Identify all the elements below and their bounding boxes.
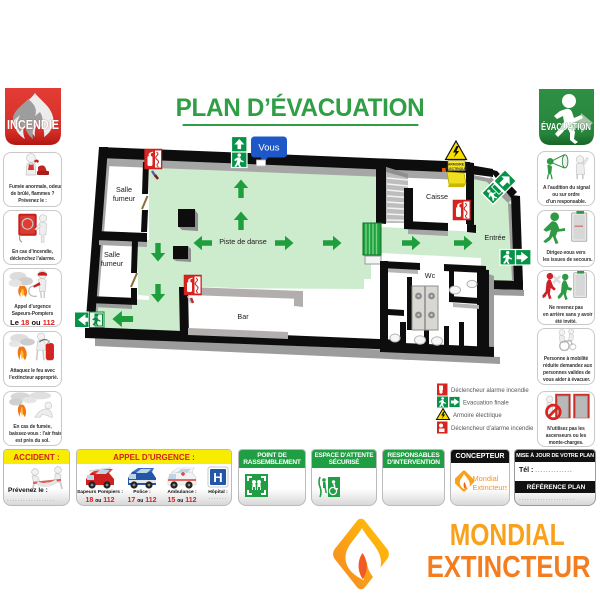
svg-text:Salle: Salle bbox=[104, 250, 120, 259]
svg-text:Armoire électrique: Armoire électrique bbox=[453, 413, 502, 419]
svg-text:H: H bbox=[213, 470, 222, 485]
svg-text:ELECTRIQUE: ELECTRIQUE bbox=[445, 167, 468, 171]
svg-text:Déclencheur d’alarme incendie: Déclencheur d’alarme incendie bbox=[451, 426, 534, 432]
svg-text:Salle: Salle bbox=[116, 185, 132, 194]
svg-text:Mondial: Mondial bbox=[473, 474, 499, 483]
svg-text:Caisse: Caisse bbox=[426, 192, 448, 201]
svg-text:Déclencheur alarme incendie: Déclencheur alarme incendie bbox=[451, 388, 529, 394]
svg-text:Piste de danse: Piste de danse bbox=[219, 237, 267, 246]
svg-text:EXTINCTEUR: EXTINCTEUR bbox=[427, 550, 591, 584]
svg-text:Wc: Wc bbox=[425, 271, 436, 280]
svg-text:Bar: Bar bbox=[237, 312, 249, 321]
svg-text:Extincteurs: Extincteurs bbox=[473, 483, 508, 492]
svg-text:fumeur: fumeur bbox=[113, 194, 136, 203]
svg-text:MONDIAL: MONDIAL bbox=[450, 518, 565, 552]
svg-text:Evacuation finale: Evacuation finale bbox=[463, 401, 509, 407]
svg-text:Vous: Vous bbox=[258, 143, 279, 154]
svg-text:Entrée: Entrée bbox=[484, 233, 505, 242]
svg-text:fumeur: fumeur bbox=[101, 259, 124, 268]
